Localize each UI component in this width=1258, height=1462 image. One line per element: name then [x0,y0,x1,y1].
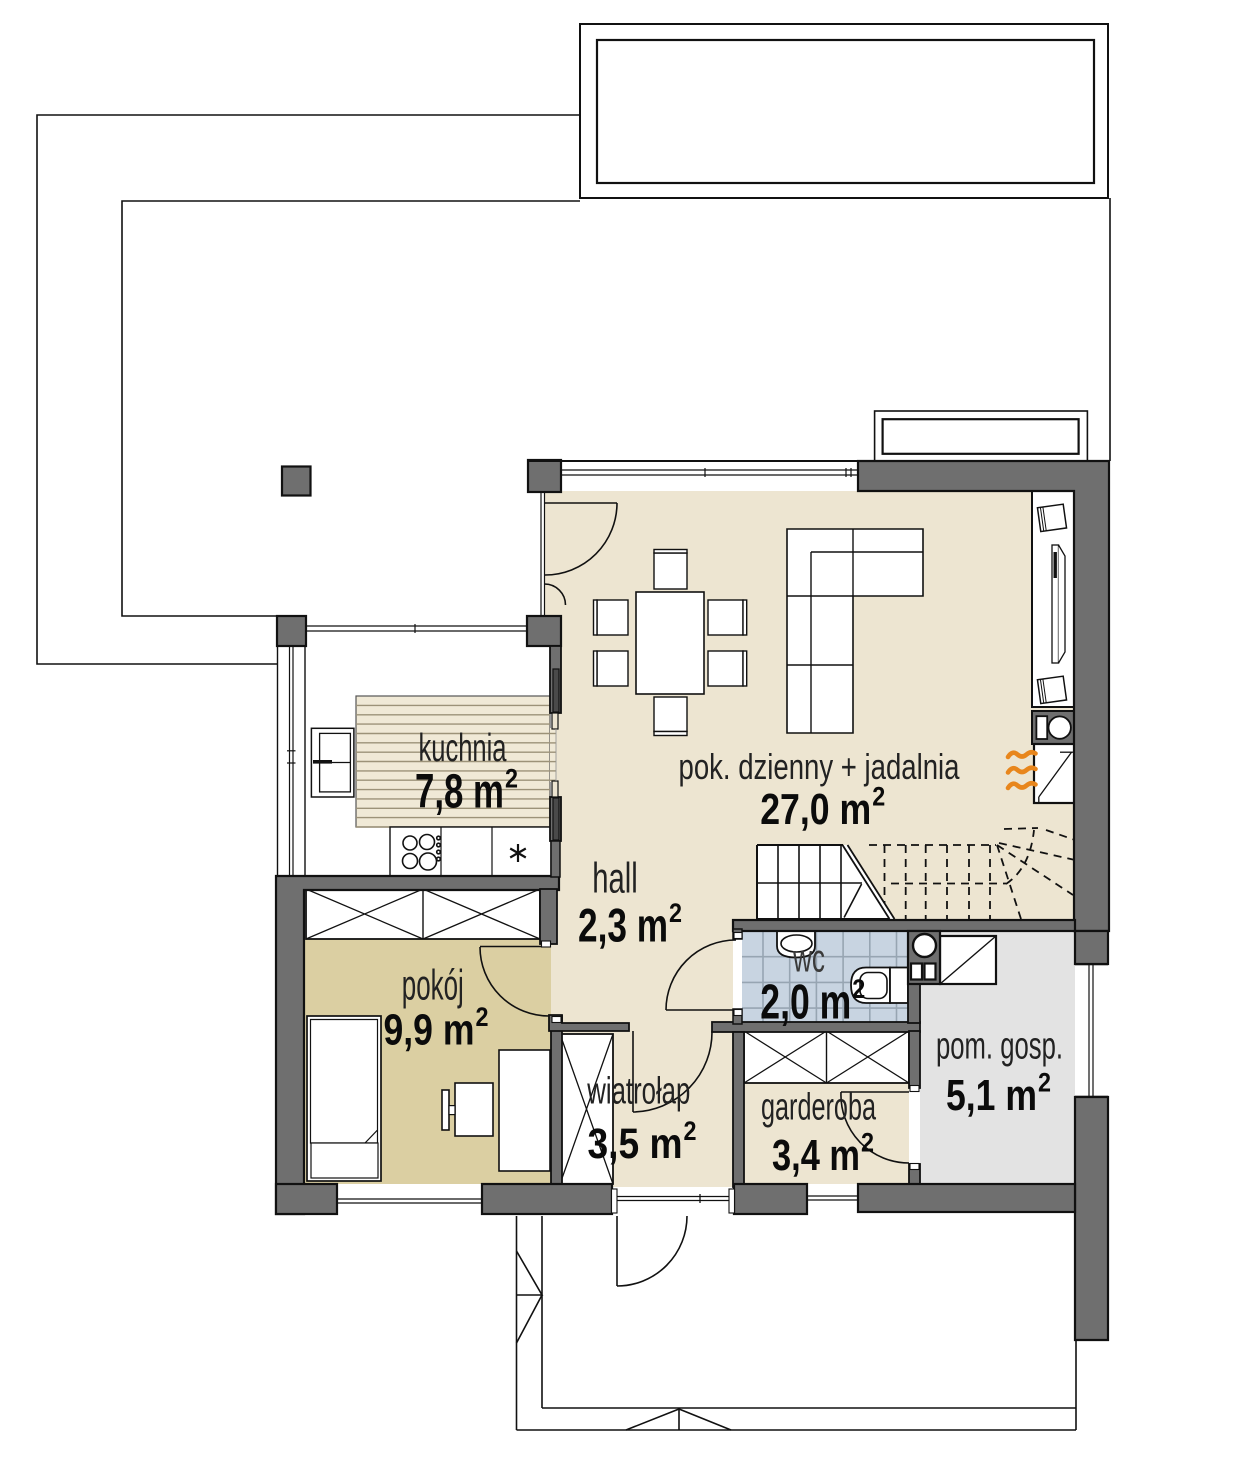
svg-text:pom. gosp.: pom. gosp. [936,1026,1063,1068]
svg-text:2: 2 [505,763,518,793]
svg-text:5,1 m: 5,1 m [946,1071,1037,1120]
svg-text:27,0 m: 27,0 m [760,785,871,834]
svg-text:hall: hall [592,854,638,902]
svg-text:wc: wc [792,937,825,980]
svg-text:2: 2 [872,781,885,811]
svg-text:7,8 m: 7,8 m [415,766,504,819]
svg-text:3,5 m: 3,5 m [588,1120,683,1168]
svg-text:2: 2 [861,1128,874,1158]
svg-text:wiatrołap: wiatrołap [587,1070,691,1112]
svg-text:2: 2 [852,974,865,1004]
svg-text:2,3 m: 2,3 m [578,899,668,952]
svg-text:3,4 m: 3,4 m [772,1131,860,1180]
svg-text:kuchnia: kuchnia [419,727,507,770]
svg-text:2,0 m: 2,0 m [760,976,851,1030]
svg-text:2: 2 [1038,1068,1051,1098]
svg-text:2: 2 [669,898,682,928]
svg-text:garderoba: garderoba [761,1087,877,1129]
svg-text:pokój: pokój [402,961,464,1009]
svg-text:2: 2 [476,1002,489,1032]
svg-text:pok. dzienny + jadalnia: pok. dzienny + jadalnia [679,746,961,787]
svg-text:2: 2 [684,1116,697,1146]
svg-text:9,9 m: 9,9 m [384,1005,475,1054]
